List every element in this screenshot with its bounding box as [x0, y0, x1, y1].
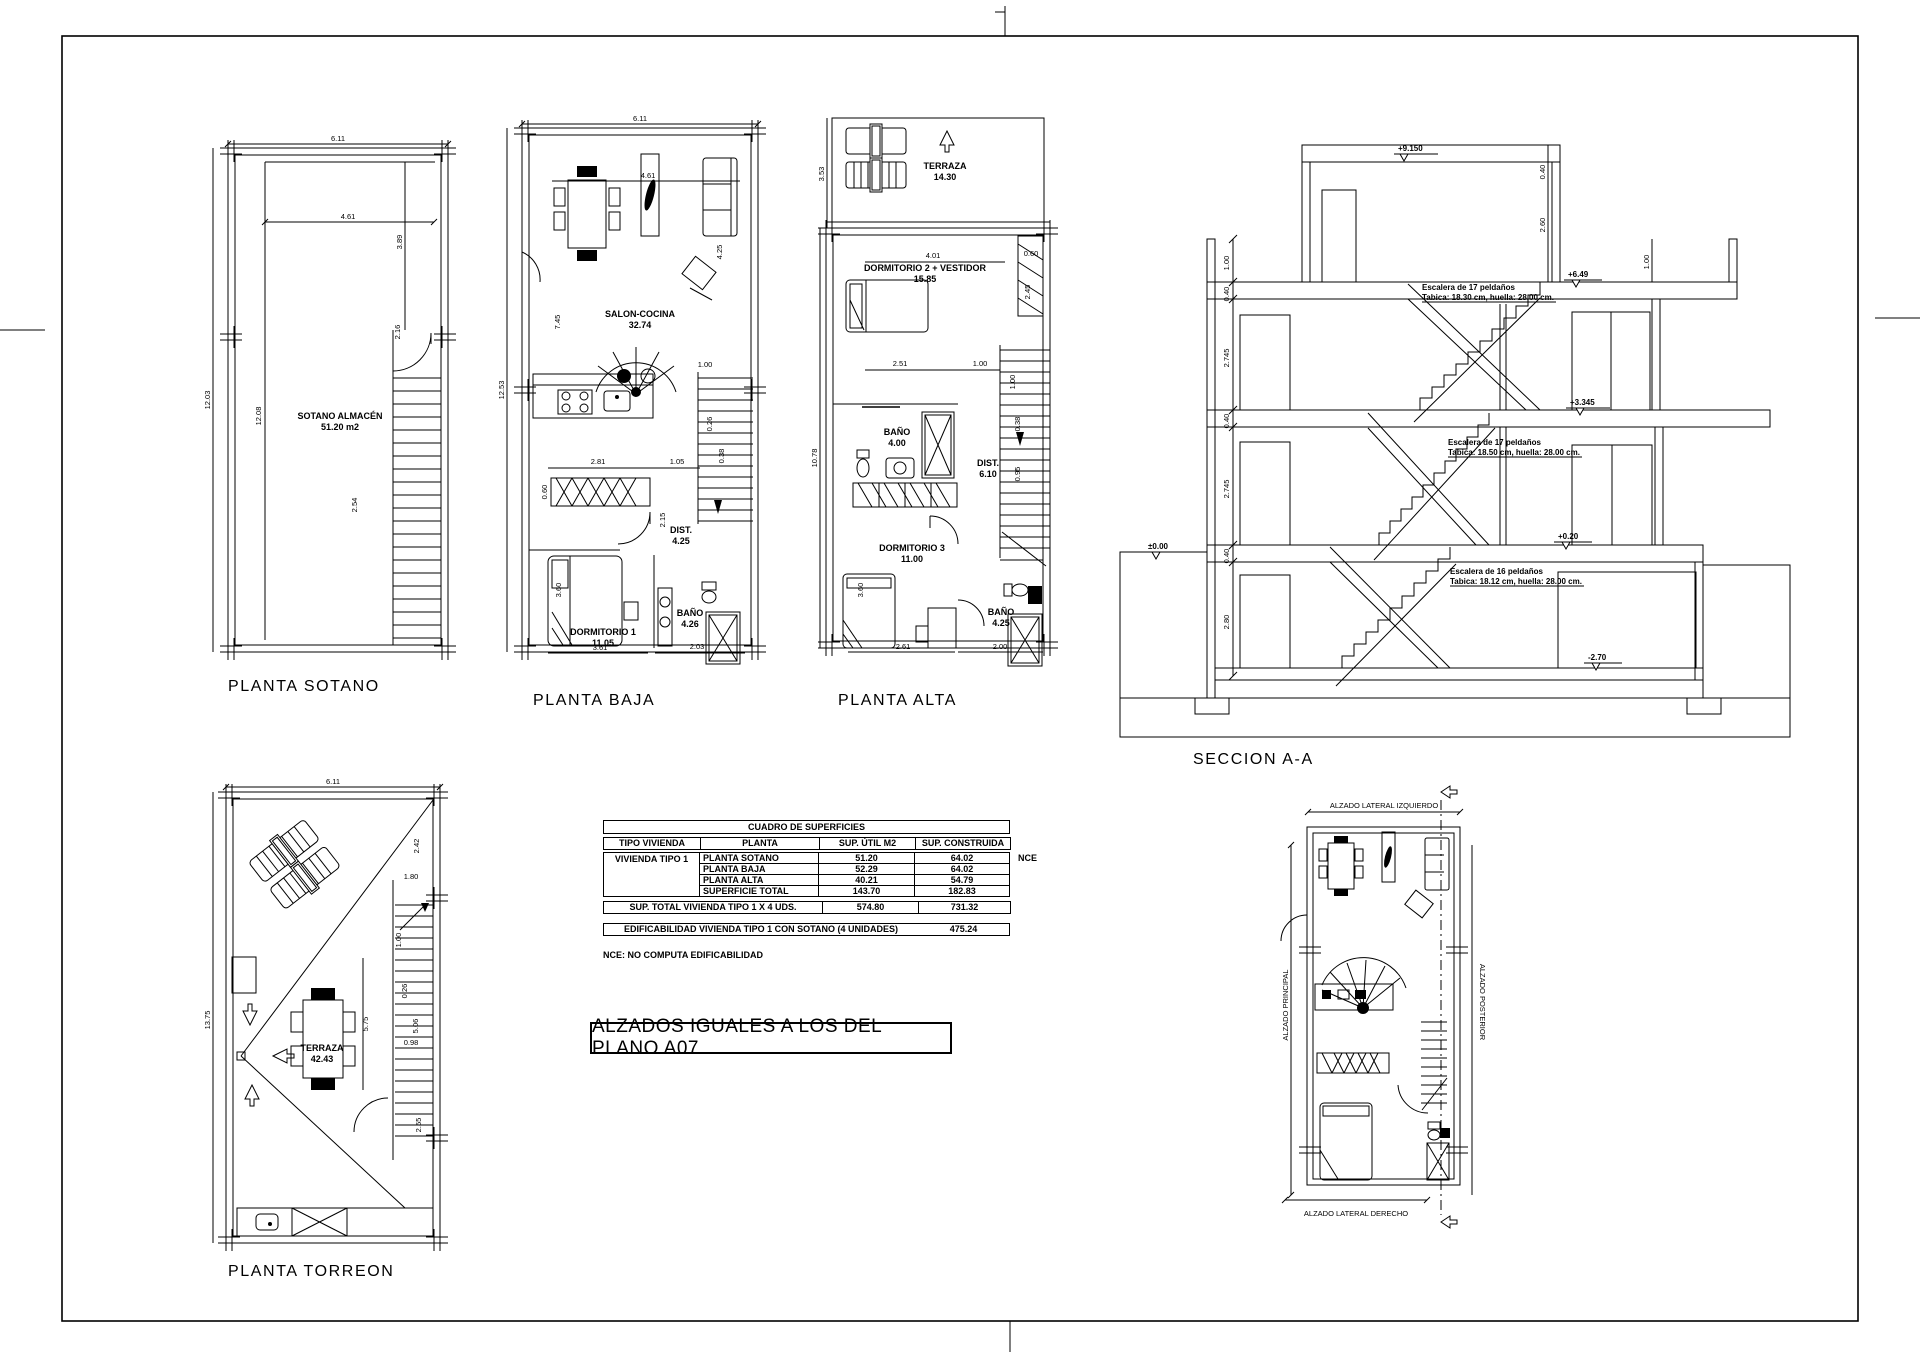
svg-text:4.25: 4.25: [715, 245, 724, 260]
svg-text:DORMITORIO 2 + VESTIDOR: DORMITORIO 2 + VESTIDOR: [864, 263, 987, 273]
svg-text:Escalera de 17 peldaños: Escalera de 17 peldaños: [1448, 438, 1541, 447]
svg-text:2.745: 2.745: [1222, 349, 1231, 368]
lounger-icons-torreon: [246, 816, 343, 913]
plan-title-alta: PLANTA ALTA: [838, 692, 957, 709]
table-cell: 182.83: [914, 885, 1010, 897]
svg-text:2.51: 2.51: [893, 359, 908, 368]
svg-text:42.43: 42.43: [311, 1054, 334, 1064]
table-title: CUADRO DE SUPERFICIES: [603, 820, 1010, 834]
roof-deck-strip: [237, 1208, 433, 1236]
svg-text:2.54: 2.54: [350, 498, 359, 513]
section-arrow-icon: [1441, 1216, 1457, 1228]
north-arrow-icon: [940, 131, 954, 152]
svg-text:3.89: 3.89: [395, 235, 404, 250]
entry-door-arc: [522, 252, 540, 282]
svg-text:+3.345: +3.345: [1570, 398, 1595, 407]
door-arc: [958, 600, 984, 626]
plan-alta: 4.01 3.53 10.78 0.60 2.45 2.51 1.00 1.00…: [810, 118, 1058, 709]
table-cell-tipo: VIVIENDA TIPO 1: [603, 852, 700, 897]
svg-text:2.745: 2.745: [1222, 480, 1231, 499]
svg-text:3.60: 3.60: [554, 583, 563, 598]
svg-text:0.60: 0.60: [1024, 249, 1039, 258]
label-alzado-principal: ALZADO PRINCIPAL: [1281, 969, 1290, 1040]
mini-furniture: [1281, 832, 1449, 941]
svg-text:6.11: 6.11: [326, 777, 340, 786]
svg-text:DIST.: DIST.: [977, 458, 999, 468]
slope-arrow-icon: [243, 1004, 257, 1025]
cad-drawing: 6.11 4.61 12.03 12.08 3.89 2.16 2.54 SOT…: [0, 0, 1920, 1357]
table-cell: SUPERFICIE TOTAL: [699, 885, 819, 897]
svg-text:4.25: 4.25: [672, 536, 690, 546]
plan-title-torreon: PLANTA TORREON: [228, 1263, 394, 1280]
section-arrow-icon: [1441, 786, 1457, 798]
svg-text:-2.70: -2.70: [1588, 653, 1607, 662]
svg-text:1.00: 1.00: [973, 359, 988, 368]
table-header: TIPO VIVIENDA PLANTA SUP. ÚTIL M2 SUP. C…: [603, 837, 1010, 850]
svg-text:5.75: 5.75: [361, 1017, 370, 1032]
svg-text:4.61: 4.61: [641, 171, 656, 180]
svg-text:0.95: 0.95: [1013, 467, 1022, 482]
surfaces-table: CUADRO DE SUPERFICIES TIPO VIVIENDA PLAN…: [603, 820, 1010, 936]
stairs-baja: [698, 372, 753, 524]
svg-text:2.03: 2.03: [690, 642, 705, 651]
plan-baja: 6.11 4.61 12.53 7.45 4.25 2.81 1.05 2.15…: [497, 114, 766, 709]
svg-text:12.08: 12.08: [254, 407, 263, 426]
svg-text:1.80: 1.80: [404, 872, 419, 881]
drawing-sheet: 6.11 4.61 12.03 12.08 3.89 2.16 2.54 SOT…: [0, 0, 1920, 1357]
col-header: SUP. ÚTIL M2: [819, 837, 916, 850]
svg-text:Tabica: 18.50 cm, huella: 28.0: Tabica: 18.50 cm, huella: 28.00 cm.: [1448, 448, 1580, 457]
svg-text:2.55: 2.55: [414, 1118, 423, 1133]
dims-sotano: 6.11 4.61 12.03 12.08 3.89 2.16 2.54: [203, 134, 451, 652]
table-total-row: SUP. TOTAL VIVIENDA TIPO 1 X 4 UDS. 574.…: [603, 901, 1010, 914]
svg-text:0.40: 0.40: [1222, 414, 1231, 429]
svg-text:Escalera de 17 peldaños: Escalera de 17 peldaños: [1422, 283, 1515, 292]
plan-sotano: 6.11 4.61 12.03 12.08 3.89 2.16 2.54 SOT…: [203, 134, 456, 695]
svg-text:6.11: 6.11: [331, 134, 345, 143]
dims-baja: 6.11 4.61 12.53 7.45 4.25 2.81 1.05 2.15…: [497, 114, 761, 653]
table-cell: 731.32: [918, 901, 1011, 914]
svg-text:4.61: 4.61: [341, 212, 356, 221]
table-cell: 475.24: [918, 924, 1009, 935]
svg-text:2.15: 2.15: [658, 513, 667, 528]
svg-text:4.01: 4.01: [926, 251, 941, 260]
svg-text:BAÑO: BAÑO: [988, 607, 1015, 617]
svg-text:0.40: 0.40: [1222, 287, 1231, 302]
nce-flag: NCE: [1018, 853, 1037, 863]
plan-title-baja: PLANTA BAJA: [533, 692, 655, 709]
label-alzado-izquierdo: ALZADO LATERAL IZQUIERDO: [1330, 801, 1439, 810]
table-edificabilidad-row: EDIFICABILIDAD VIVIENDA TIPO 1 CON SOTAN…: [603, 923, 1010, 936]
svg-text:+6.49: +6.49: [1568, 270, 1589, 279]
room-label: SALON-COCINA: [605, 309, 675, 319]
svg-text:0.38: 0.38: [717, 449, 726, 464]
label-alzado-posterior: ALZADO POSTERIOR: [1478, 964, 1487, 1041]
section-stairs: [1330, 282, 1540, 686]
table-rows: PLANTA SOTANO 51.20 64.02NCE PLANTA BAJA…: [700, 852, 1010, 897]
kitchen-nook: [596, 347, 676, 397]
wardrobe-alta: [853, 483, 957, 507]
svg-text:0.38: 0.38: [1013, 417, 1022, 432]
svg-text:2.81: 2.81: [591, 457, 606, 466]
dims-section: 1.00 0.40 2.745 0.40 2.745 0.40 2.80 0.4…: [1222, 145, 1652, 680]
svg-text:15.85: 15.85: [914, 274, 937, 284]
svg-text:+9.150: +9.150: [1398, 144, 1423, 153]
svg-text:1.00: 1.00: [1008, 375, 1017, 390]
svg-text:13.75: 13.75: [203, 1011, 212, 1030]
room-label: SOTANO ALMACÉN: [298, 411, 383, 421]
svg-text:1.05: 1.05: [670, 457, 685, 466]
svg-text:4.00: 4.00: [888, 438, 906, 448]
stairs-sotano: [393, 330, 441, 645]
tv-cabinet-icon: [641, 154, 659, 236]
dims-torreon: 6.11 13.75 2.42 1.80 1.00 0.26 5.06 0.98…: [203, 777, 443, 1243]
svg-text:0.60: 0.60: [540, 485, 549, 500]
vestidor-closet: [1018, 236, 1043, 316]
north-arrow-icon: [245, 1085, 259, 1106]
svg-text:11.00: 11.00: [901, 554, 923, 564]
mini-wardrobe: [1317, 1053, 1389, 1073]
room-label: TERRAZA: [301, 1043, 344, 1053]
alzados-note-box: ALZADOS IGUALES A LOS DEL PLANO A07: [590, 1022, 952, 1054]
svg-text:Tabica: 18.12 cm, huella: 28.0: Tabica: 18.12 cm, huella: 28.00 cm.: [1450, 577, 1582, 586]
svg-text:Tabica: 18.30 cm, huella: 28.0: Tabica: 18.30 cm, huella: 28.00 cm.: [1422, 293, 1554, 302]
svg-text:0.26: 0.26: [705, 417, 714, 432]
nce-footnote: NCE: NO COMPUTA EDIFICABILIDAD: [603, 950, 763, 960]
svg-text:7.45: 7.45: [553, 315, 562, 330]
svg-text:4.25: 4.25: [992, 618, 1010, 628]
svg-text:2.00: 2.00: [993, 642, 1008, 651]
svg-text:1.00: 1.00: [1642, 255, 1651, 270]
svg-text:1.00: 1.00: [394, 933, 403, 948]
svg-text:14.30: 14.30: [934, 172, 957, 182]
svg-text:DORMITORIO 3: DORMITORIO 3: [879, 543, 945, 553]
svg-text:2.45: 2.45: [1023, 285, 1032, 300]
svg-text:DIST.: DIST.: [670, 525, 692, 535]
svg-text:BAÑO: BAÑO: [677, 608, 704, 618]
svg-text:6.10: 6.10: [979, 469, 997, 479]
svg-text:±0.00: ±0.00: [1148, 542, 1169, 551]
svg-text:5.06: 5.06: [411, 1019, 420, 1034]
svg-text:6.11: 6.11: [633, 114, 647, 123]
svg-text:32.74: 32.74: [629, 320, 652, 330]
room-label: TERRAZA: [924, 161, 967, 171]
svg-text:11.05: 11.05: [592, 638, 614, 648]
svg-text:1.00: 1.00: [1222, 256, 1231, 271]
level-markers: +9.150 +6.49 +3.345 +0.20 -2.70 ±0.00: [1144, 144, 1622, 670]
plan-torreon: 6.11 13.75 2.42 1.80 1.00 0.26 5.06 0.98…: [203, 777, 448, 1280]
earth-hatch: [1120, 552, 1207, 698]
door-arc: [354, 1098, 388, 1132]
svg-text:0.26: 0.26: [400, 984, 409, 999]
svg-text:Escalera de 16 peldaños: Escalera de 16 peldaños: [1450, 567, 1543, 576]
plan-title-sotano: PLANTA SOTANO: [228, 678, 380, 695]
mini-bed: [1320, 1103, 1372, 1180]
wardrobe: [551, 478, 650, 506]
keyplan-alzados: ALZADO LATERAL IZQUIERDO: [1281, 786, 1487, 1228]
svg-text:0.98: 0.98: [404, 1038, 419, 1047]
sofa-icon: [682, 158, 737, 300]
svg-text:10.78: 10.78: [810, 449, 819, 468]
col-header: PLANTA: [700, 837, 820, 850]
svg-text:2.16: 2.16: [393, 325, 402, 340]
svg-text:51.20 m2: 51.20 m2: [321, 422, 359, 432]
svg-text:2.42: 2.42: [412, 839, 421, 854]
dining-table-icon: [554, 166, 620, 261]
svg-text:4.26: 4.26: [681, 619, 699, 629]
note-text: ALZADOS IGUALES A LOS DEL PLANO A07: [592, 1016, 950, 1060]
table-cell: EDIFICABILIDAD VIVIENDA TIPO 1 CON SOTAN…: [604, 924, 918, 935]
lounger-icons: [846, 124, 906, 192]
svg-text:2.61: 2.61: [896, 642, 911, 651]
door-arc: [618, 512, 650, 544]
mini-kitchen: [1315, 984, 1393, 1010]
svg-text:+0.20: +0.20: [1558, 532, 1579, 541]
col-header: TIPO VIVIENDA: [603, 837, 701, 850]
roof-diagonal: [241, 800, 433, 1056]
col-header: SUP. CONSTRUIDA M2: [915, 837, 1011, 850]
svg-text:1.00: 1.00: [698, 360, 713, 369]
svg-text:BAÑO: BAÑO: [884, 427, 911, 437]
bed-dorm2-icon: [846, 280, 928, 332]
value: 64.02: [951, 853, 974, 863]
mini-stairs: [1421, 1022, 1447, 1110]
svg-text:3.53: 3.53: [817, 167, 826, 182]
svg-text:3.60: 3.60: [856, 583, 865, 598]
svg-text:12.03: 12.03: [203, 391, 212, 410]
table-cell: SUP. TOTAL VIVIENDA TIPO 1 X 4 UDS.: [603, 901, 823, 914]
svg-text:0.40: 0.40: [1538, 165, 1547, 180]
table-cell: 143.70: [818, 885, 915, 897]
section-title: SECCION A-A: [1193, 751, 1314, 768]
svg-text:2.60: 2.60: [1538, 218, 1547, 233]
svg-text:0.40: 0.40: [1222, 549, 1231, 564]
door-arc: [930, 516, 958, 544]
table-icon-torreon: [291, 988, 355, 1090]
label-alzado-derecho: ALZADO LATERAL DERECHO: [1304, 1209, 1408, 1218]
svg-text:12.53: 12.53: [497, 381, 506, 400]
svg-text:2.80: 2.80: [1222, 615, 1231, 630]
dims-alta: 4.01 3.53 10.78 0.60 2.45 2.51 1.00 1.00…: [810, 118, 1043, 652]
svg-text:DORMITORIO 1: DORMITORIO 1: [570, 627, 636, 637]
section-a-a: Escalera de 17 peldaños Tabica: 18.30 cm…: [1120, 144, 1790, 768]
table-cell: 574.80: [822, 901, 919, 914]
mini-bath: [1398, 1085, 1450, 1180]
